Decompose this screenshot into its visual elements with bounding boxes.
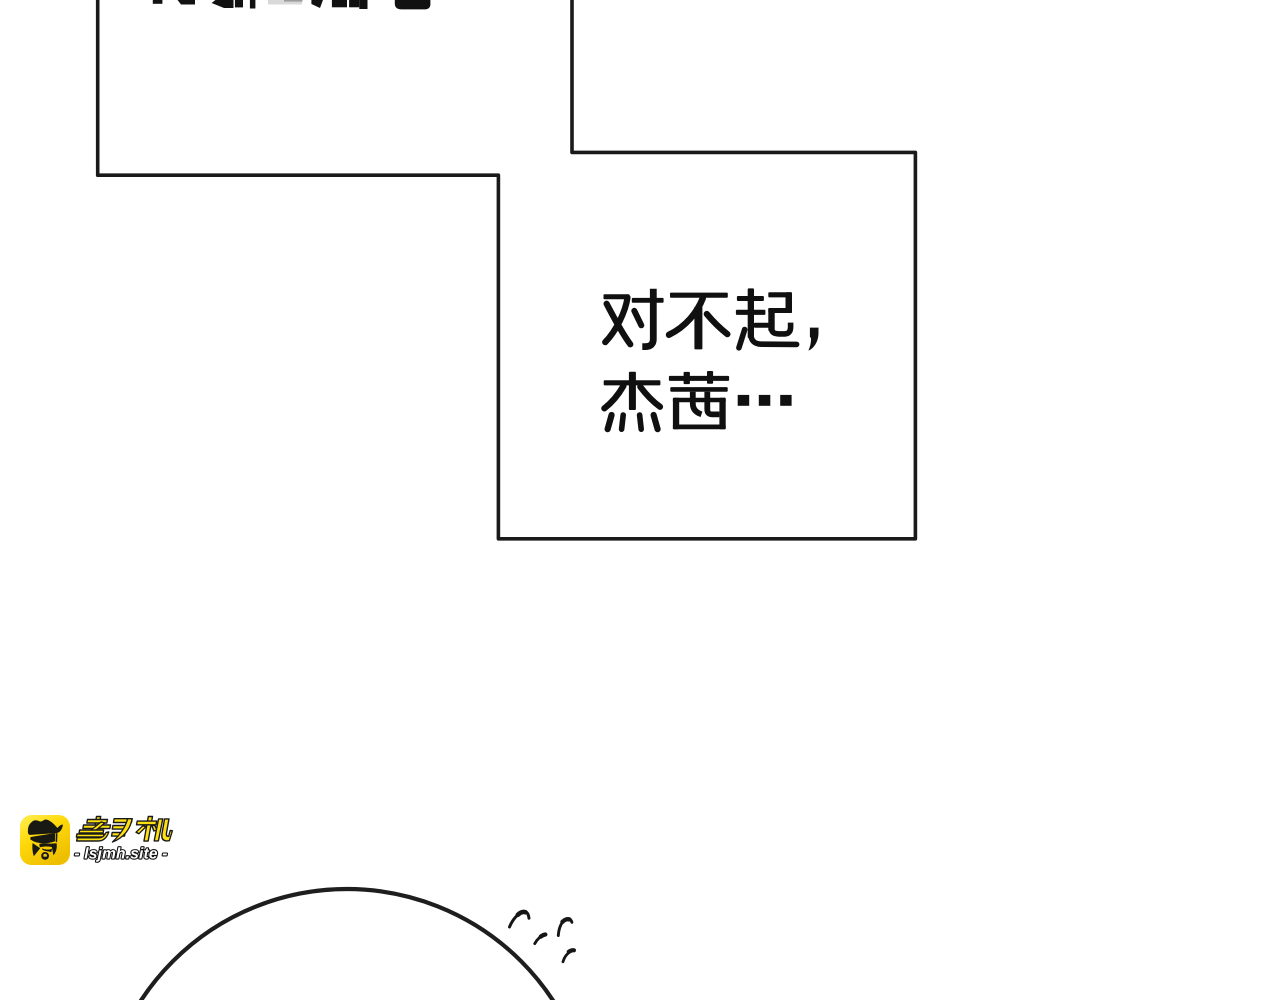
svg-text:- lsjmh.site -: - lsjmh.site -: [74, 846, 167, 863]
